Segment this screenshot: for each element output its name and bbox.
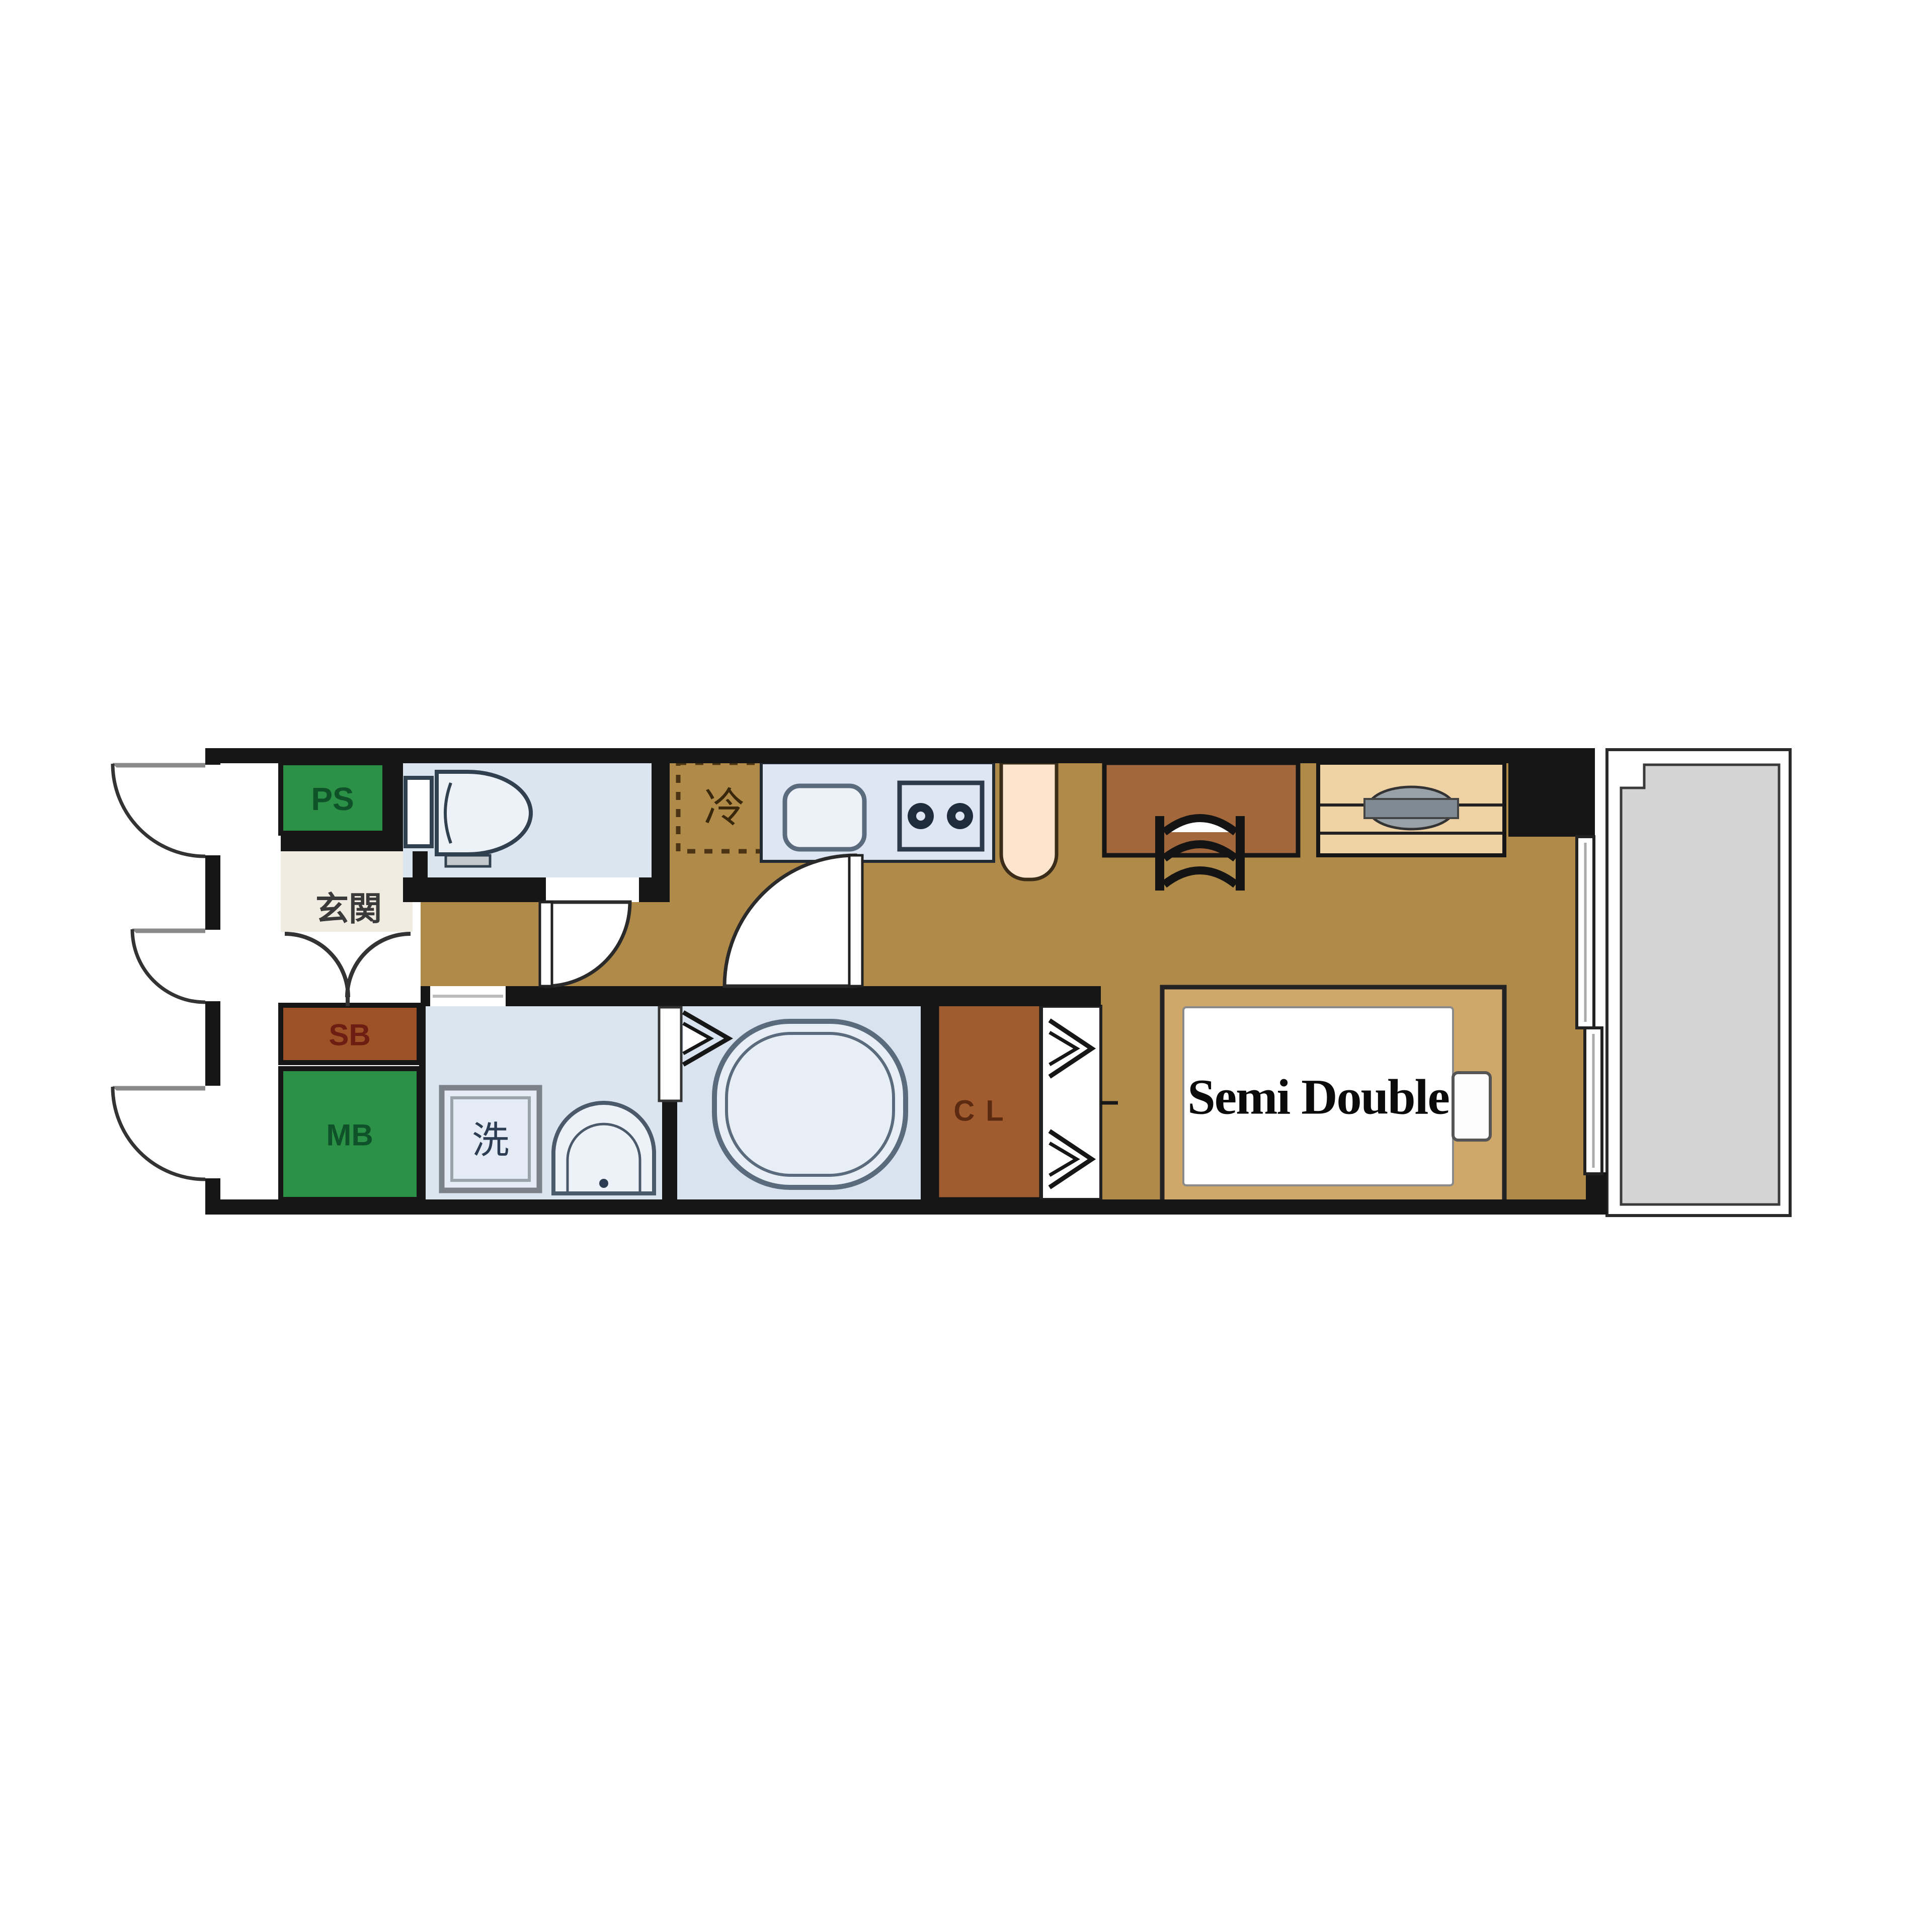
hatch-door-genkan-arc: [132, 929, 205, 1002]
chair-side-left: [1155, 816, 1164, 891]
bathroom: [714, 1021, 906, 1187]
wall-window-bottom-corner: [1586, 1172, 1607, 1215]
wall-left-c: [205, 1001, 220, 1086]
wall-right-column: [1508, 748, 1595, 837]
room-labels: 玄関: [315, 890, 382, 927]
hatch-door-ps: [113, 764, 205, 856]
floor-plan: PS SB MB 冷: [0, 0, 1932, 1932]
hatch-door-genkan: [132, 929, 205, 1002]
shoe-box-label: SB: [329, 1018, 370, 1052]
wall-left-d: [205, 1178, 220, 1215]
toilet-door-leaf: [540, 902, 552, 986]
hatch-door-mb-arc: [113, 1087, 205, 1179]
wall-bottom: [205, 1199, 1607, 1215]
toilet-tank: [406, 778, 432, 846]
floor-plan-page: PS SB MB 冷: [0, 0, 1932, 1932]
hatch-door-ps-arc: [113, 764, 205, 856]
closet-label: CL: [953, 1095, 1014, 1128]
wall-corridor-bottom: [506, 986, 1101, 1006]
stove-burner-left-center: [916, 812, 925, 821]
washbasin-drain: [599, 1179, 608, 1188]
wall-toilet-bottom-right: [639, 877, 670, 902]
washer-label: 洗: [472, 1119, 509, 1161]
wall-toilet-bottom-left: [403, 877, 546, 902]
balcony-slab: [1621, 765, 1779, 1204]
bathroom-door-strip: [659, 1007, 681, 1101]
bed-label: Semi Double: [1187, 1069, 1449, 1125]
kitchen-sink: [785, 786, 864, 849]
wall-wash-bath: [662, 1100, 677, 1199]
wall-bath-closet: [921, 1006, 937, 1199]
ldk-door-leaf: [849, 855, 862, 986]
closet: CL: [937, 1001, 1118, 1199]
bathtub: [714, 1021, 906, 1187]
tv-board-group: [1318, 763, 1504, 855]
wall-washroom-left: [419, 1006, 426, 1199]
stove-burner-right-center: [955, 812, 964, 821]
toilet-base: [446, 855, 490, 866]
wall-under-ps: [281, 833, 403, 851]
pipe-space-label: PS: [311, 781, 354, 817]
bed: Semi Double: [1162, 987, 1504, 1202]
wall-left-a: [205, 748, 220, 765]
chair-side-right: [1236, 816, 1245, 891]
entrance-label: 玄関: [315, 890, 382, 927]
hatch-door-mb: [113, 1087, 205, 1179]
wall-left-b: [205, 855, 220, 930]
wall-corridor-bottom-left: [421, 986, 430, 1006]
fridge-label: 冷: [704, 785, 745, 831]
tv-stand-bar: [1364, 799, 1458, 818]
meter-box-label: MB: [326, 1118, 373, 1152]
balcony: [1607, 750, 1790, 1216]
bed-pillow: [1453, 1073, 1490, 1140]
counter-end-panel: [1001, 763, 1057, 879]
